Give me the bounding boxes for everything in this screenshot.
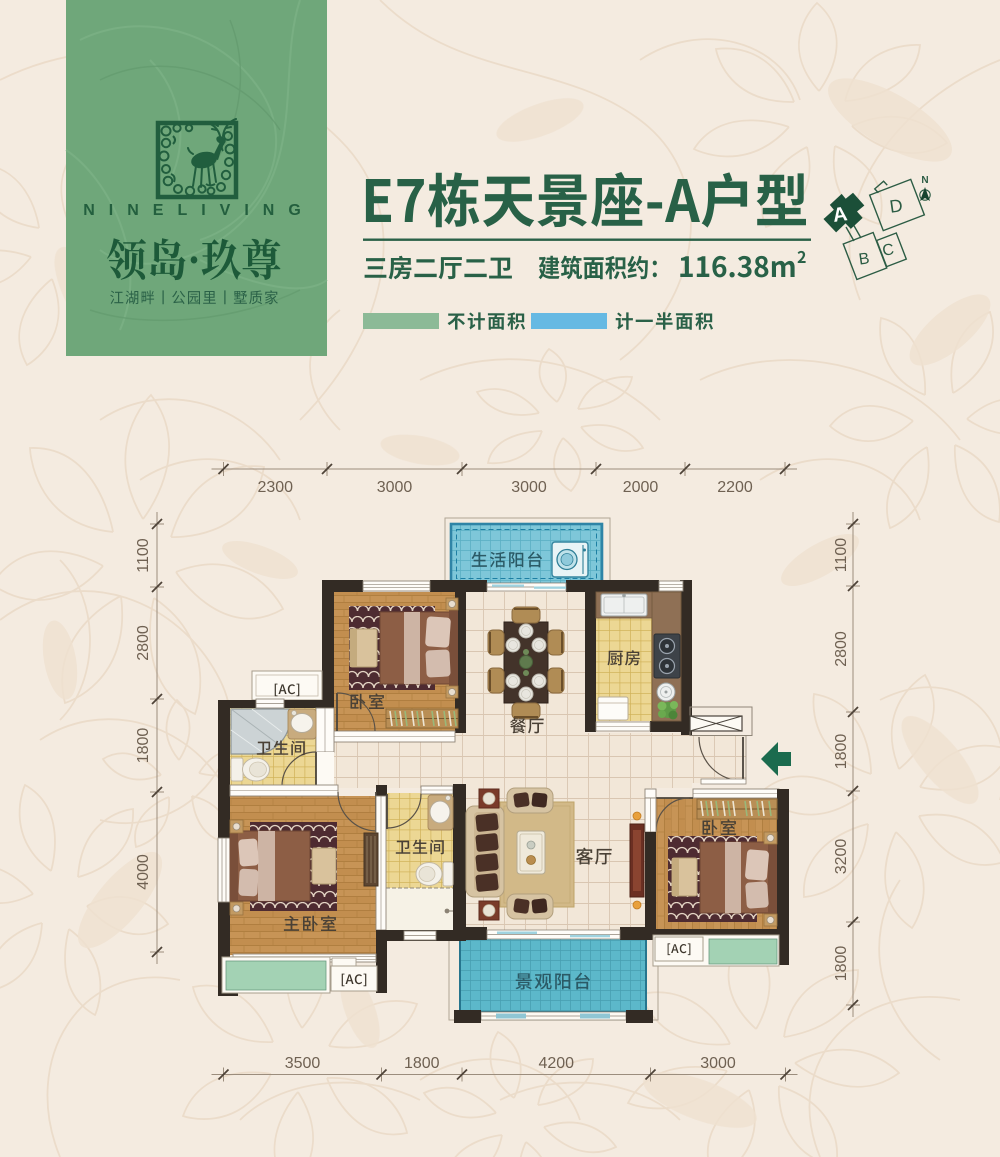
svg-text:3000: 3000: [511, 479, 547, 496]
svg-text:N: N: [921, 175, 928, 186]
svg-text:1800: 1800: [135, 728, 152, 764]
svg-text:3200: 3200: [833, 839, 850, 875]
svg-text:1100: 1100: [135, 538, 152, 573]
svg-text:4200: 4200: [538, 1055, 574, 1072]
svg-text:1800: 1800: [833, 946, 850, 982]
svg-text:A: A: [831, 203, 848, 227]
svg-text:2000: 2000: [623, 479, 659, 496]
svg-text:D: D: [888, 195, 904, 217]
svg-text:4000: 4000: [135, 854, 152, 890]
svg-text:2800: 2800: [833, 631, 850, 667]
svg-text:2300: 2300: [257, 479, 293, 496]
svg-text:2800: 2800: [135, 625, 152, 661]
svg-text:3500: 3500: [285, 1055, 321, 1072]
svg-text:NINELIVING: NINELIVING: [83, 202, 315, 219]
svg-text:1800: 1800: [404, 1055, 440, 1072]
svg-text:2200: 2200: [717, 479, 753, 496]
svg-text:C: C: [881, 241, 895, 259]
svg-text:1800: 1800: [833, 734, 850, 770]
svg-text:3000: 3000: [377, 479, 413, 496]
svg-text:1100: 1100: [833, 538, 850, 573]
svg-text:3000: 3000: [700, 1055, 736, 1072]
